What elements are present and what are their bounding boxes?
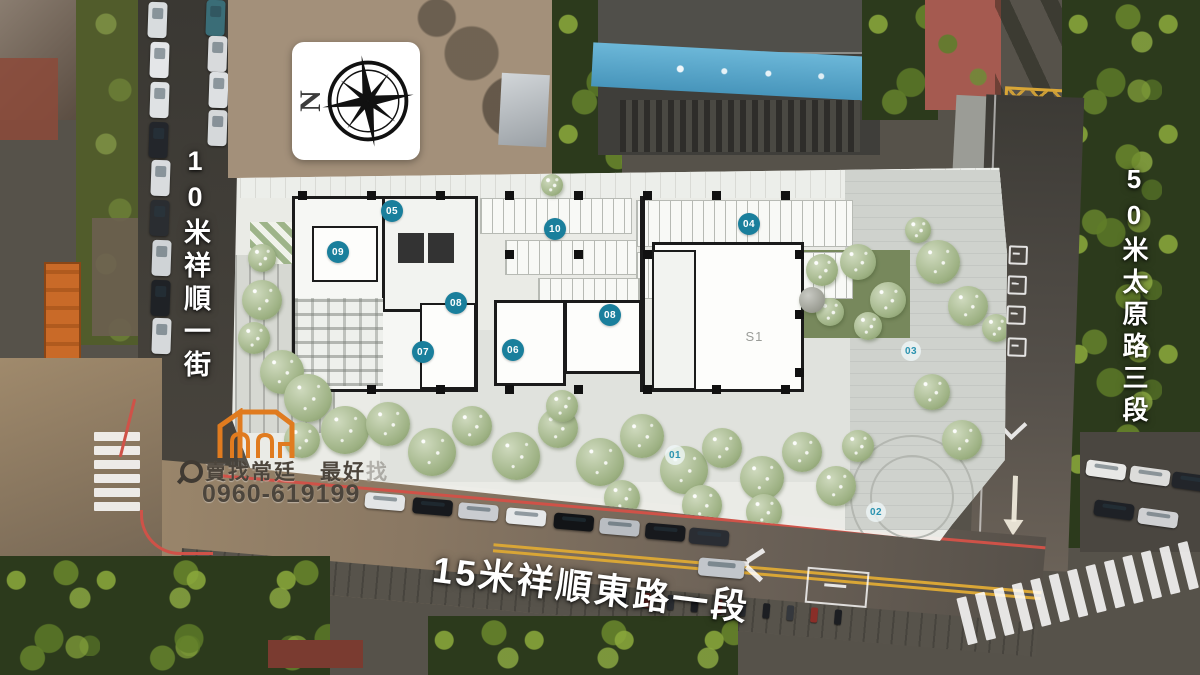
crosswalk-stripe (1012, 582, 1033, 631)
tree (238, 322, 270, 354)
tree (905, 217, 931, 243)
plaza-ring-inner (870, 455, 954, 539)
road-marking-glyph (1007, 337, 1027, 357)
scooter (834, 609, 842, 625)
crosswalk-stripe (1049, 573, 1070, 622)
compass-card: N (292, 42, 420, 160)
brand-building-icon (214, 408, 298, 458)
crosswalk-stripe (1030, 578, 1051, 627)
car (151, 318, 171, 355)
car (458, 502, 499, 521)
crosswalk-stripe (993, 587, 1014, 636)
crosswalk-stripe (94, 502, 140, 511)
scooter (786, 605, 794, 621)
tree (914, 374, 950, 410)
car (645, 522, 686, 541)
car (151, 240, 171, 277)
scooter-glyph (824, 583, 846, 588)
car (150, 280, 170, 317)
structural-column (505, 250, 514, 259)
brand-phone-number: 0960-619199 (202, 480, 360, 509)
car (364, 492, 405, 511)
scooter (762, 603, 770, 619)
structural-column (795, 310, 804, 319)
structural-column (505, 385, 514, 394)
plan-marker-08: 08 (599, 304, 621, 326)
structural-column (712, 191, 721, 200)
structural-column (781, 385, 790, 394)
plan-marker-08: 08 (445, 292, 467, 314)
scooter (810, 607, 818, 623)
structural-column (298, 191, 307, 200)
road-marking-glyph (1008, 245, 1028, 265)
plan-marker-05: 05 (381, 200, 403, 222)
tree (840, 244, 876, 280)
crosswalk-stripe (1122, 555, 1143, 604)
tree (782, 432, 822, 472)
car (148, 122, 168, 159)
plan-marker-02: 02 (866, 502, 886, 522)
tree (799, 287, 825, 313)
car (553, 512, 594, 531)
crosswalk-stripe (975, 592, 996, 641)
tree (806, 254, 838, 286)
crosswalk-stripe (1178, 541, 1199, 590)
shed-roof (498, 73, 550, 147)
tree (452, 406, 492, 446)
road-marking-glyph (1007, 275, 1027, 295)
car (207, 36, 227, 73)
plan-marker-10: 10 (544, 218, 566, 240)
structural-column (574, 385, 583, 394)
scooter-stalls (505, 240, 637, 275)
plan-marker-01: 01 (665, 445, 685, 465)
car (1129, 465, 1171, 486)
tree (842, 430, 874, 462)
car (149, 200, 169, 237)
car (207, 110, 227, 147)
crosswalk-stripe (94, 432, 140, 441)
car (1085, 459, 1127, 480)
plan-marker-06: 06 (502, 339, 524, 361)
crosswalk-stripe (94, 474, 140, 483)
two-stage-turn-box (805, 567, 870, 608)
road-marking-glyph (1006, 305, 1026, 325)
tree (816, 466, 856, 506)
unit-label: S1 (746, 329, 764, 344)
street-label-right: 50米太原路三段 (1116, 164, 1153, 428)
tree (620, 414, 664, 458)
elevator-shaft (398, 233, 424, 263)
magnifier-icon (180, 460, 203, 483)
building-wall-right (640, 196, 645, 392)
car (205, 0, 225, 36)
structural-column (505, 191, 514, 200)
trees-bottom-center (428, 616, 738, 675)
tree (870, 282, 906, 318)
crosswalk-stripe (94, 446, 140, 455)
tree (942, 420, 982, 460)
structural-column (795, 250, 804, 259)
tree (541, 174, 563, 196)
plan-marker-04: 04 (738, 213, 760, 235)
compass-north-letter: N (294, 90, 328, 112)
structural-column (781, 191, 790, 200)
road-arrow-stem (1011, 476, 1018, 522)
structural-column (574, 250, 583, 259)
tree (916, 240, 960, 284)
structural-column (574, 191, 583, 200)
crosswalk-stripe (1085, 564, 1106, 613)
tree (546, 390, 578, 422)
structural-column (643, 250, 652, 259)
car (1171, 471, 1200, 492)
red-roof (0, 58, 58, 140)
structural-column (367, 385, 376, 394)
tree (321, 406, 369, 454)
tree (982, 314, 1010, 342)
car (505, 507, 546, 526)
structural-column (367, 191, 376, 200)
tree (366, 402, 410, 446)
crosswalk-stripe (1141, 550, 1162, 599)
plan-marker-07: 07 (412, 341, 434, 363)
tree (948, 286, 988, 326)
structural-column (712, 385, 721, 394)
elevator-shaft (428, 233, 454, 263)
red-track (925, 0, 1001, 110)
crosswalk-stripe (1159, 546, 1180, 595)
crosswalk-stripe (94, 460, 140, 469)
tree (242, 280, 282, 320)
tree (492, 432, 540, 480)
car (147, 2, 167, 39)
crosswalk-stripe (94, 488, 140, 497)
car (688, 527, 729, 546)
crosswalk-stripe (1067, 569, 1088, 618)
aerial-site-plan: S1 0510040908080706030102 10米祥順一街 50米太原路… (0, 0, 1200, 675)
s1-annex-cells (652, 250, 696, 390)
compass-rose-icon (320, 53, 416, 149)
structural-column (436, 385, 445, 394)
plan-marker-03: 03 (901, 341, 921, 361)
structural-column (643, 385, 652, 394)
street-label-left: 10米祥順一街 (176, 146, 215, 383)
crosswalk-stripe (1104, 559, 1125, 608)
plan-marker-09: 09 (327, 241, 349, 263)
car (150, 160, 170, 197)
tree (702, 428, 742, 468)
car (599, 517, 640, 536)
structural-column (795, 368, 804, 377)
structural-column (643, 191, 652, 200)
car (208, 72, 228, 109)
car (149, 82, 169, 119)
large-building-top (598, 0, 880, 155)
tree (248, 244, 276, 272)
structural-column (436, 191, 445, 200)
red-shed-bottom (268, 640, 363, 668)
car (412, 497, 453, 516)
car (149, 42, 169, 79)
brand-text-faded: 找 (366, 456, 389, 486)
lobby-furniture (295, 298, 383, 386)
crosswalk-left (94, 432, 144, 518)
tree (576, 438, 624, 486)
car (1093, 499, 1135, 520)
tree (854, 312, 882, 340)
building-louvers (620, 100, 860, 152)
